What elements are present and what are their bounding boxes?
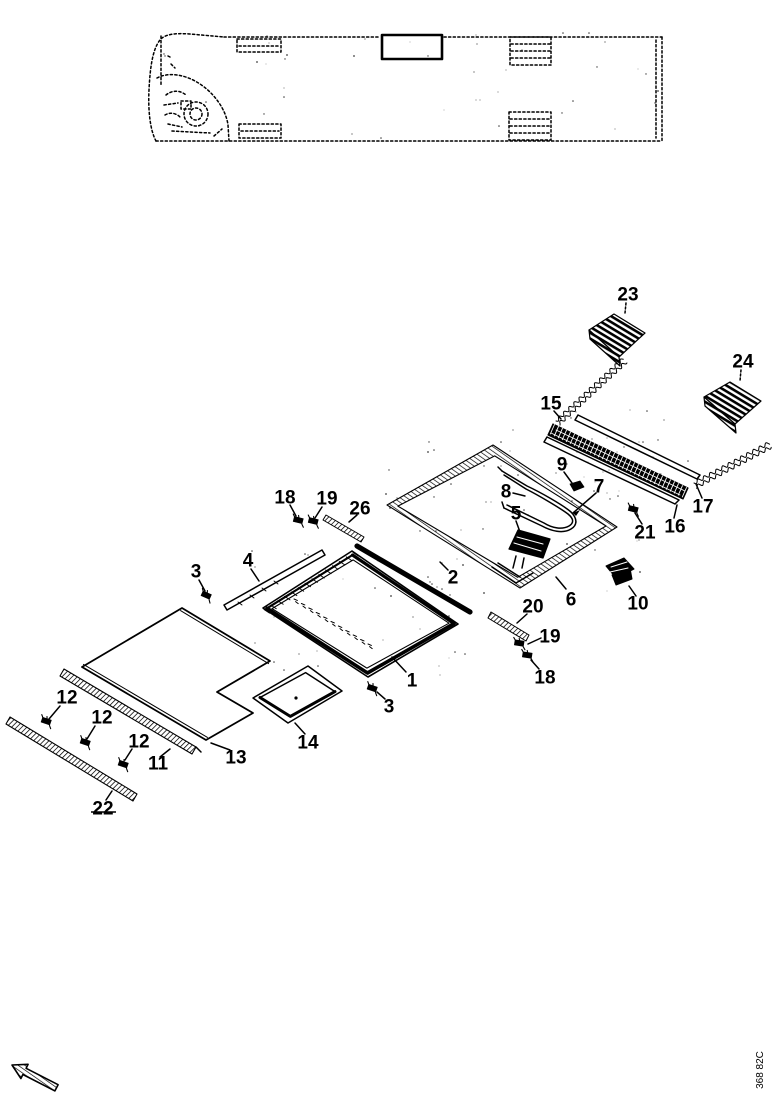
svg-text:2: 2	[448, 568, 459, 589]
svg-text:11: 11	[148, 754, 169, 775]
svg-text:23: 23	[617, 285, 638, 306]
svg-text:5: 5	[511, 504, 522, 525]
svg-text:12: 12	[128, 732, 149, 753]
svg-text:22: 22	[92, 799, 113, 820]
svg-text:13: 13	[225, 748, 246, 769]
svg-text:4: 4	[243, 551, 254, 572]
svg-text:3: 3	[191, 562, 202, 583]
svg-text:6: 6	[566, 590, 577, 611]
svg-text:1: 1	[407, 671, 418, 692]
svg-text:16: 16	[664, 517, 685, 538]
svg-text:368 82C: 368 82C	[755, 1051, 766, 1089]
svg-text:14: 14	[297, 733, 319, 754]
svg-text:9: 9	[557, 455, 568, 476]
svg-text:18: 18	[274, 488, 295, 509]
svg-text:21: 21	[634, 523, 656, 544]
svg-text:19: 19	[316, 489, 337, 510]
svg-text:12: 12	[91, 708, 112, 729]
svg-text:7: 7	[594, 477, 605, 498]
svg-text:15: 15	[540, 394, 562, 415]
svg-text:10: 10	[627, 594, 648, 615]
svg-text:19: 19	[539, 627, 560, 648]
svg-text:18: 18	[534, 668, 555, 689]
svg-text:20: 20	[522, 597, 543, 618]
svg-text:12: 12	[56, 688, 77, 709]
svg-text:17: 17	[692, 497, 713, 518]
svg-text:3: 3	[384, 697, 395, 718]
svg-text:8: 8	[501, 482, 512, 503]
svg-text:26: 26	[349, 499, 370, 520]
svg-text:24: 24	[732, 352, 754, 373]
